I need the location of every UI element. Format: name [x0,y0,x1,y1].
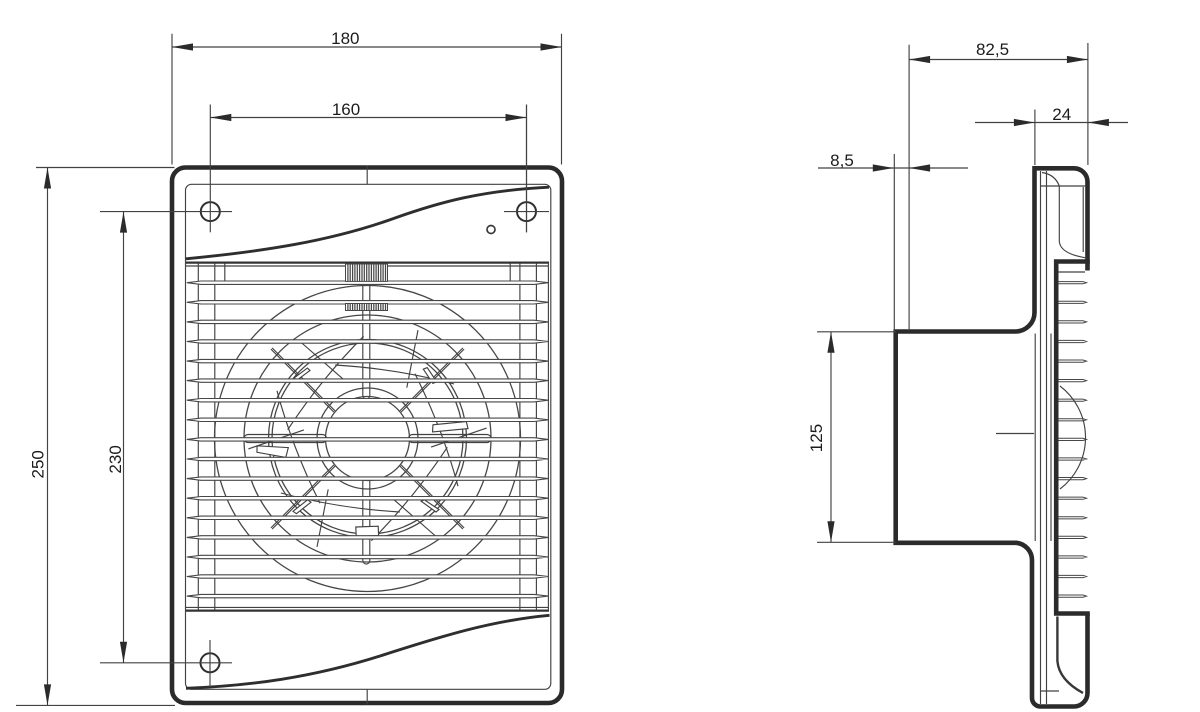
svg-text:230: 230 [106,445,125,473]
svg-text:125: 125 [807,424,826,452]
svg-text:24: 24 [1052,105,1071,124]
svg-text:8,5: 8,5 [830,151,854,170]
svg-text:82,5: 82,5 [976,40,1009,59]
svg-text:250: 250 [28,450,47,478]
svg-text:160: 160 [332,100,360,119]
svg-text:180: 180 [331,29,359,48]
